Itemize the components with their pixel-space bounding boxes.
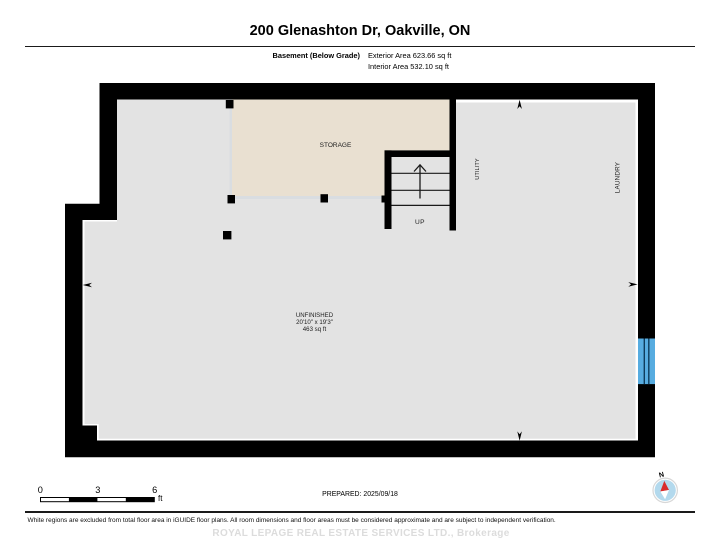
svg-text:N: N: [658, 471, 665, 479]
